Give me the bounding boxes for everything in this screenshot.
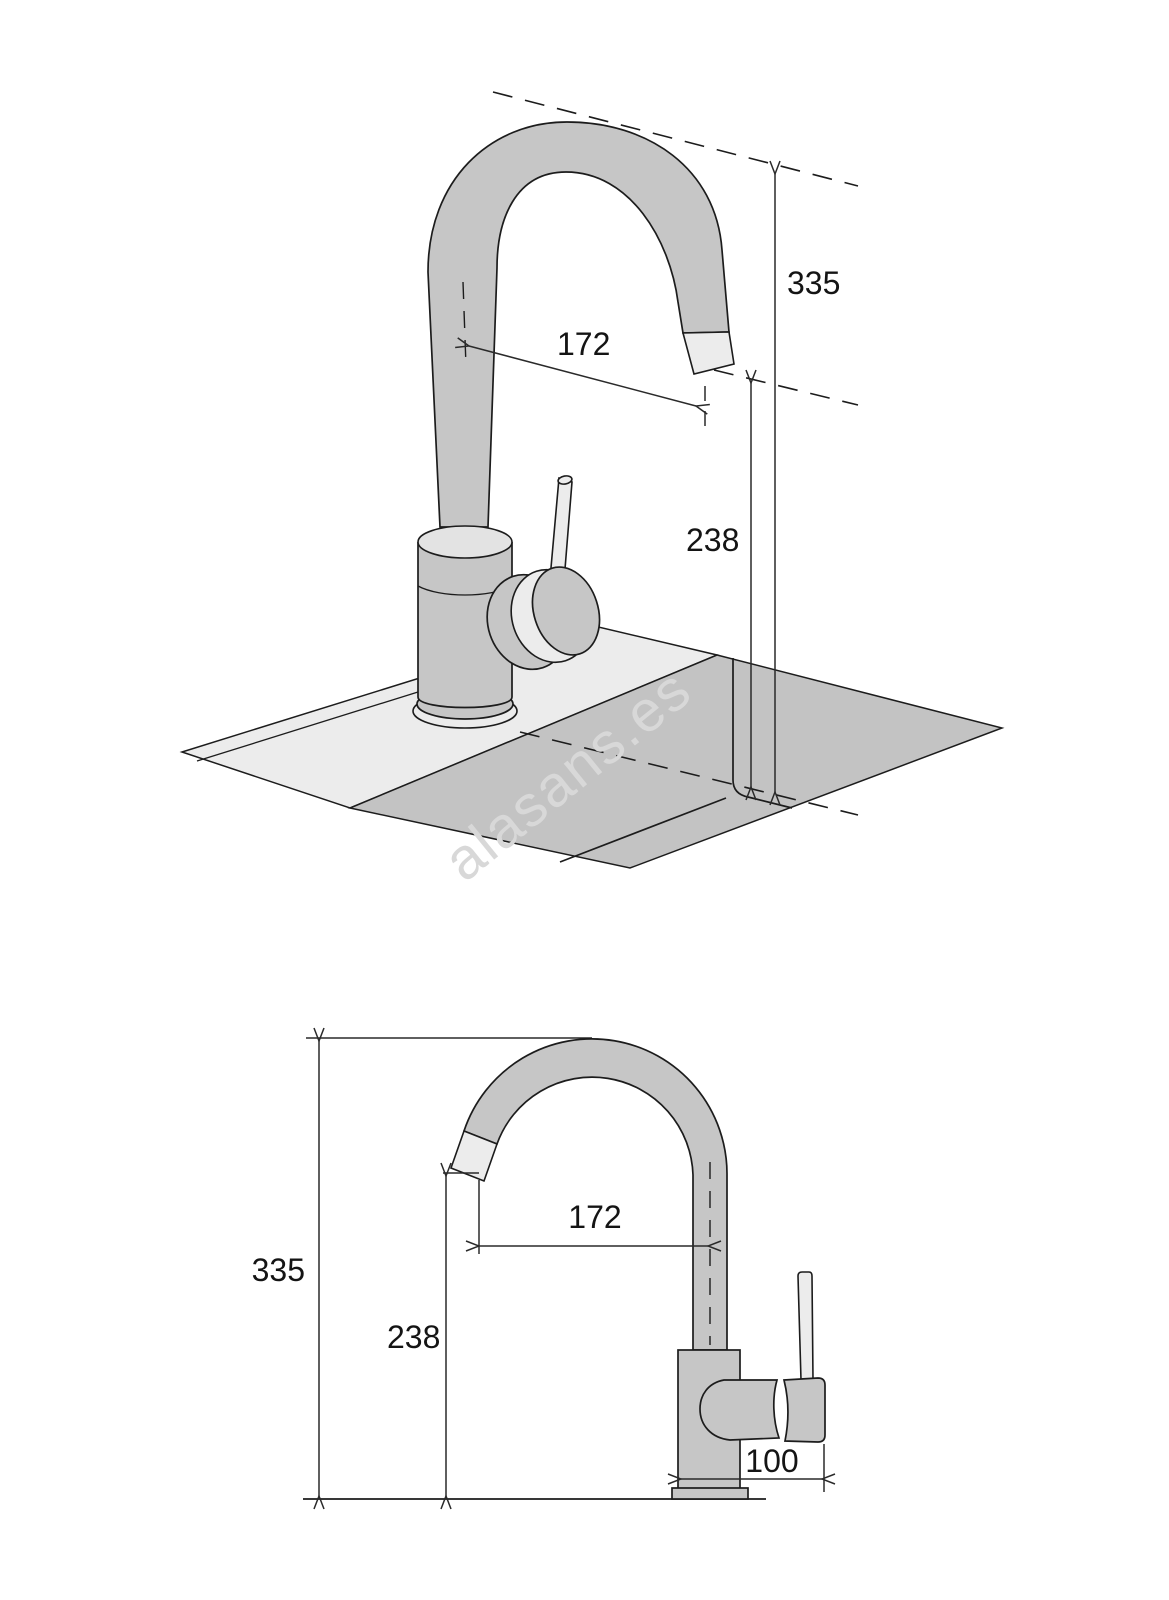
dim-label-spout-height: 238	[686, 522, 739, 558]
body-top-face	[418, 526, 512, 558]
spout-gooseneck	[428, 122, 729, 527]
handle-grip-side	[784, 1378, 825, 1442]
dim-label-spout-height-side: 238	[387, 1319, 440, 1355]
dim-label-total-height-side: 335	[252, 1252, 305, 1288]
technical-drawing-page: alasans.es 335 238	[0, 0, 1169, 1600]
spout-projection-line	[714, 370, 858, 405]
spout-gooseneck-side	[464, 1039, 727, 1350]
faucet-dimension-drawing: alasans.es 335 238	[0, 0, 1169, 1600]
faucet-perspective	[413, 122, 734, 728]
dim-label-total-height: 335	[787, 265, 840, 301]
faucet-elevation	[451, 1039, 825, 1499]
dim-label-spout-reach: 172	[557, 326, 610, 362]
spout-aerator	[683, 332, 734, 374]
perspective-view: alasans.es 335 238	[182, 92, 1002, 894]
handle-joint-side	[700, 1380, 779, 1440]
handle-lever-rod-side	[798, 1272, 813, 1380]
dim-label-spout-reach-side: 172	[568, 1199, 621, 1235]
elevation-view: 335 238 172 100	[252, 1038, 825, 1499]
base-plate-side	[672, 1488, 748, 1499]
dim-label-base-depth: 100	[745, 1443, 798, 1479]
